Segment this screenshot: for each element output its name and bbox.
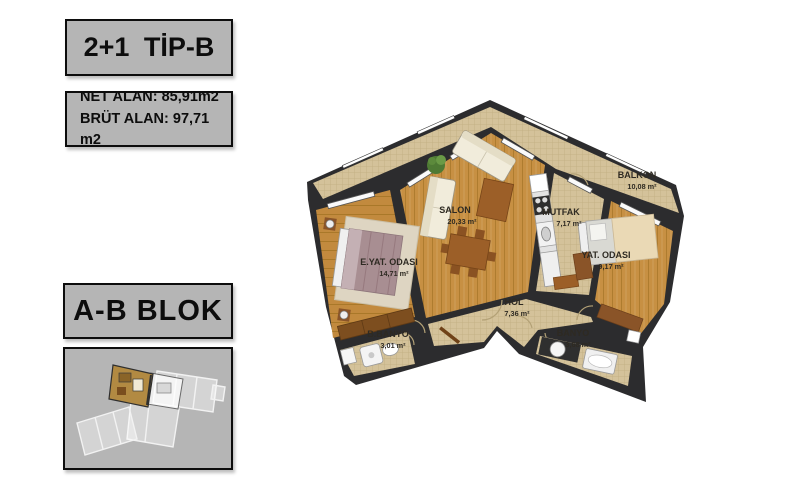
adjacent-unit-detail [157,383,171,393]
area-info-box: NET ALAN: 85,91m2 BRÜT ALAN: 97,71 m2 [65,91,233,147]
label-bbanyo: B.BANYO [367,329,409,339]
floor-plan-sheet: 2+1 TİP-B NET ALAN: 85,91m2 BRÜT ALAN: 9… [0,0,800,500]
highlighted-unit-room [119,373,131,382]
label-salon: SALON [439,205,471,215]
gross-area-text: BRÜT ALAN: 97,71 m2 [80,109,231,151]
type-label: 2+1 TİP-B [84,32,215,63]
label-yat-area: 9,17 m² [598,262,624,271]
highlighted-unit-room2 [133,379,143,391]
label-eyat: E.YAT. ODASI [360,257,418,267]
type-label-box: 2+1 TİP-B [65,19,233,76]
kitchen-sink [536,221,556,247]
nightstand-1 [323,217,337,231]
label-eyat-area: 14,71 m² [379,269,409,278]
fridge [529,173,548,192]
block-label: A-B BLOK [73,295,223,328]
label-hol-area: 7,36 m² [504,309,530,318]
label-balkon-area: 10,08 m² [627,182,657,191]
label-salon-area: 20,33 m² [447,217,477,226]
label-mutfak: MUTFAK [542,207,580,217]
highlighted-unit-room3 [117,387,126,395]
label-banyo-area: 3,68 m² [565,340,591,349]
label-hol: HOL [505,297,525,307]
label-yat: YAT. ODASI [581,250,630,260]
net-area-text: NET ALAN: 85,91m2 [80,87,219,108]
nightstand-2 [337,308,351,322]
label-mutfak-area: 7,17 m² [556,219,582,228]
site-plan-mini-map [65,349,231,468]
banyo-wc [627,330,641,343]
label-balkon: BALKON [618,170,657,180]
floor-plan: SALON 20,33 m² MUTFAK 7,17 m² BALKON 10,… [288,70,700,480]
label-bbanyo-area: 3,01 m² [380,341,406,350]
floor-plan-drawing: SALON 20,33 m² MUTFAK 7,17 m² BALKON 10,… [288,70,700,480]
site-plan-thumbnail [63,347,233,470]
label-banyo: BANYO [557,328,590,338]
block-label-box: A-B BLOK [63,283,233,339]
